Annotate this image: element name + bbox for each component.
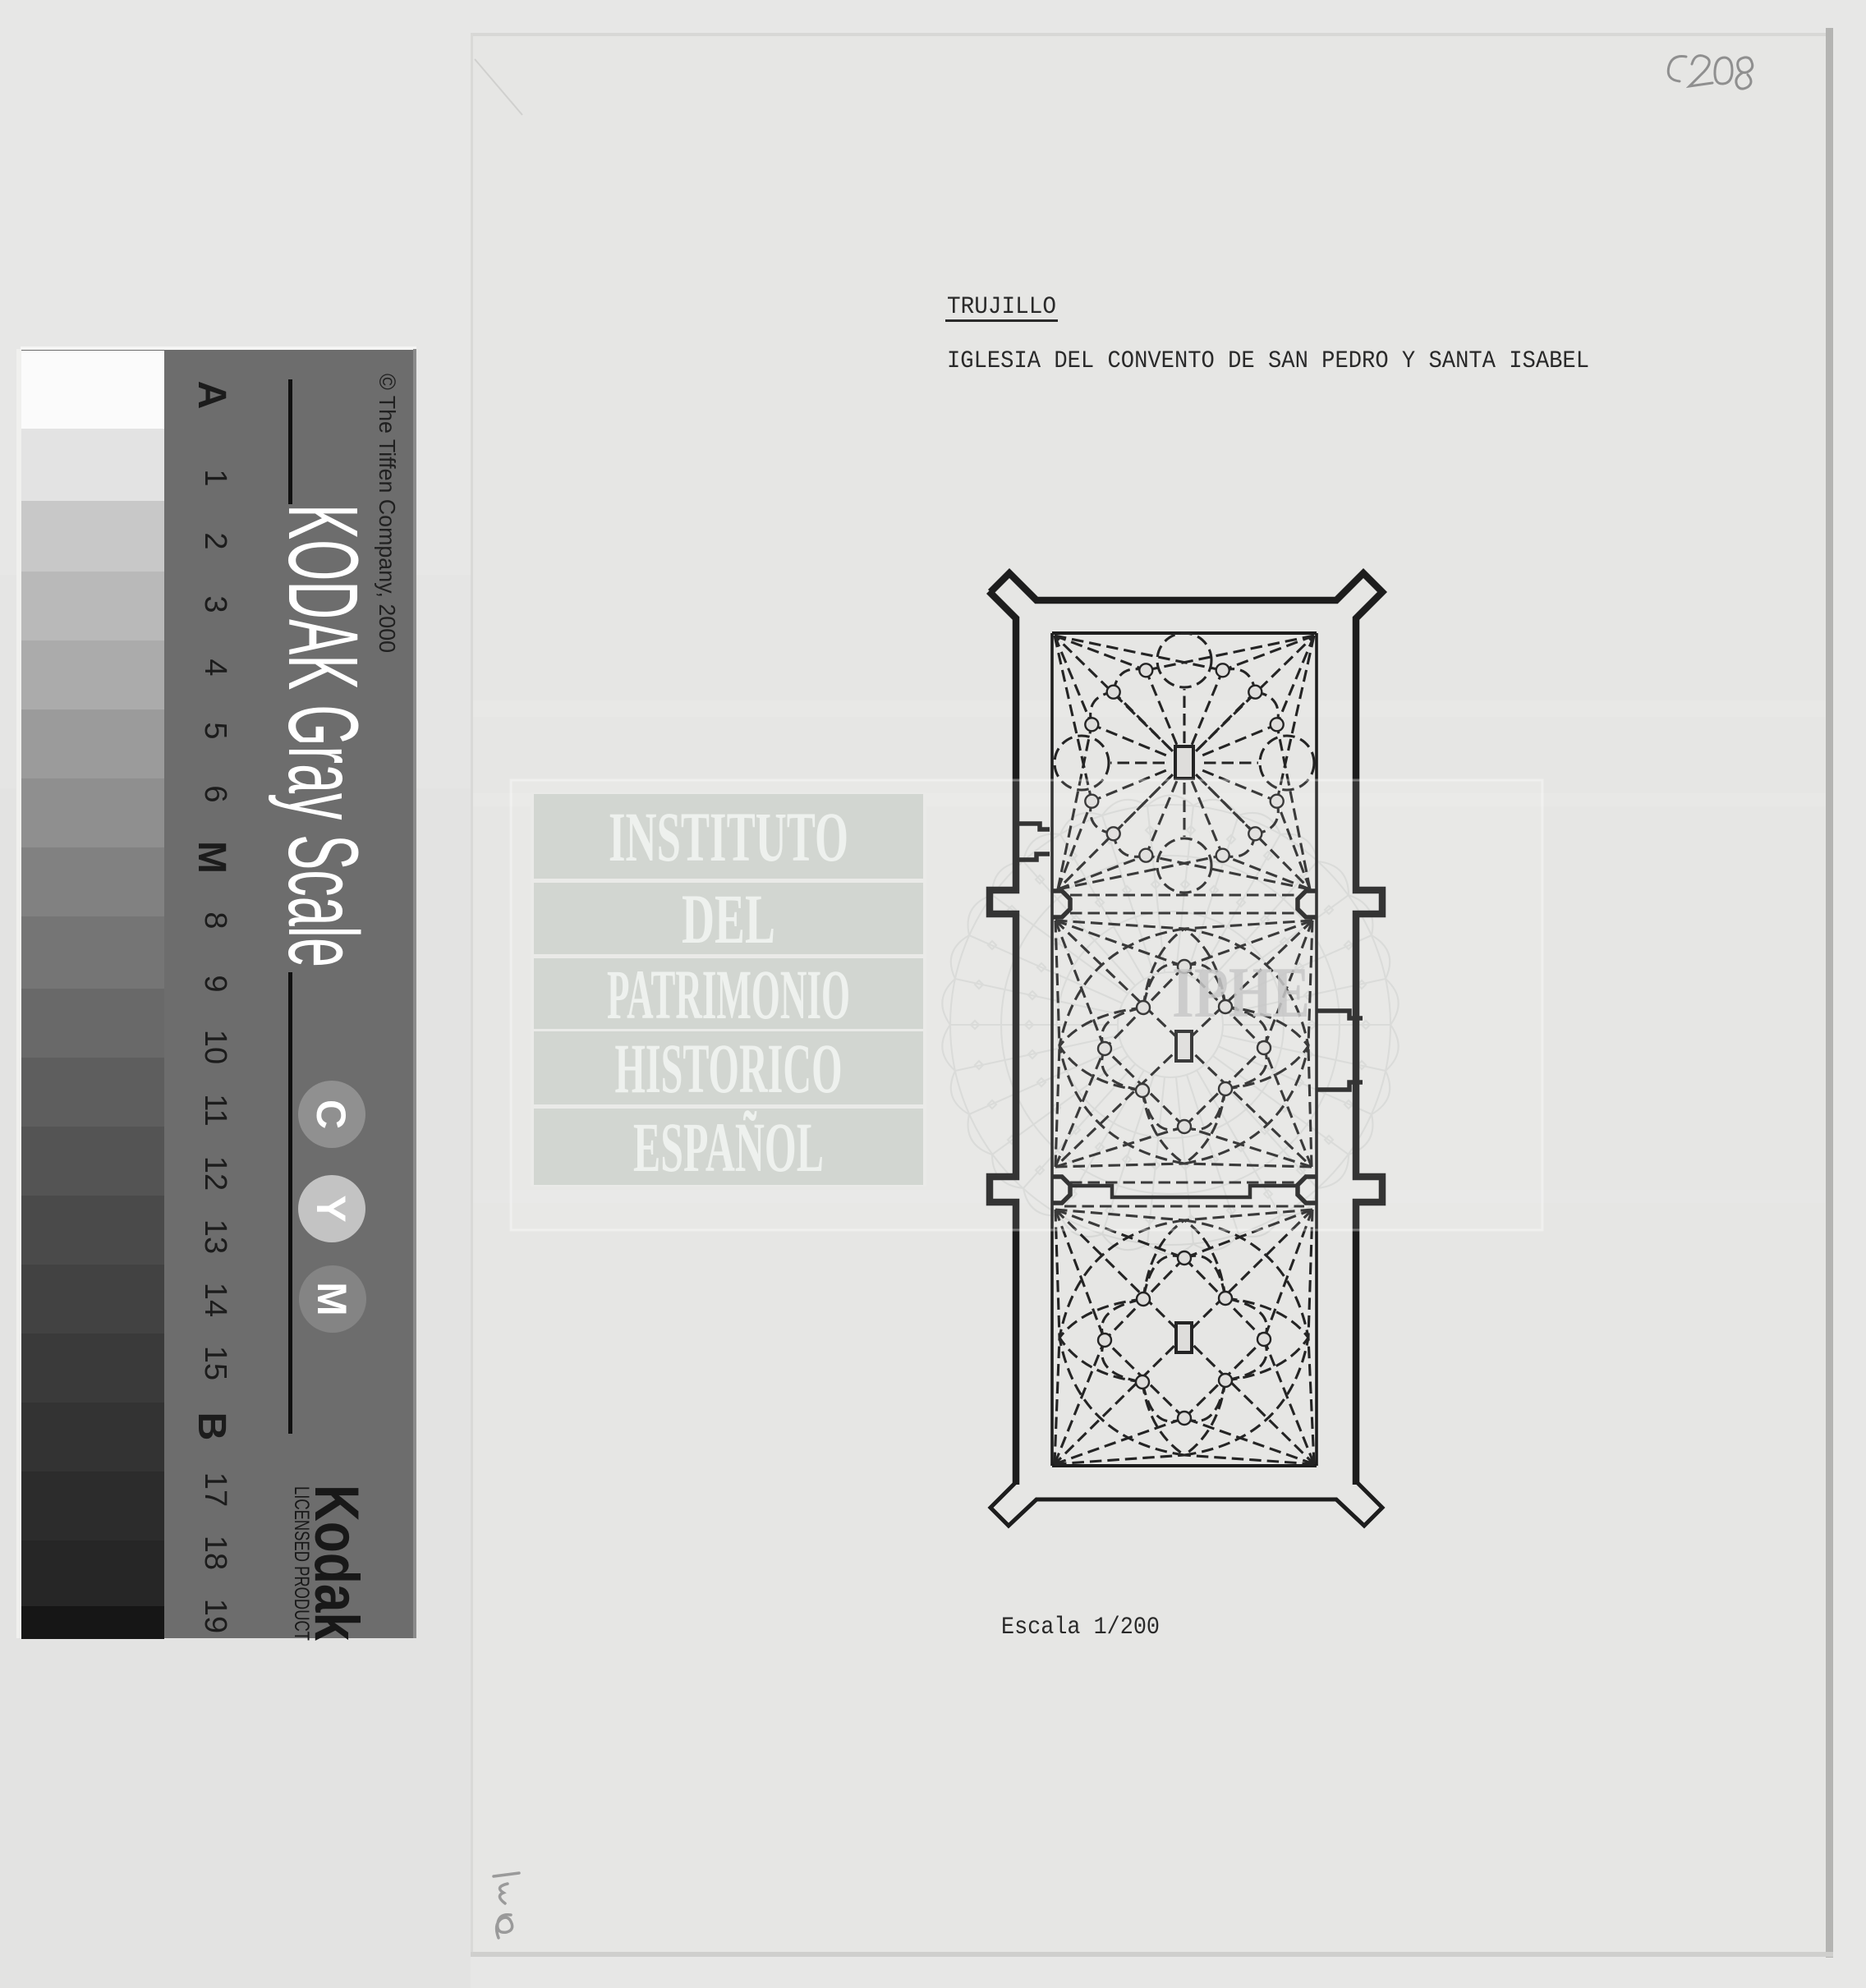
svg-text:10: 10 [198, 1030, 232, 1064]
svg-text:14: 14 [198, 1283, 232, 1317]
svg-text:C: C [308, 1100, 354, 1129]
svg-text:8: 8 [198, 911, 232, 929]
svg-text:Y: Y [308, 1195, 354, 1222]
svg-text:TRUJILLO: TRUJILLO [947, 293, 1056, 321]
svg-text:18: 18 [198, 1536, 232, 1570]
svg-text:1: 1 [198, 469, 232, 486]
svg-text:A: A [190, 381, 233, 410]
svg-text:15: 15 [198, 1346, 232, 1380]
svg-text:17: 17 [198, 1472, 232, 1507]
svg-text:9: 9 [198, 975, 232, 992]
svg-text:Escala 1/200: Escala 1/200 [1001, 1614, 1160, 1641]
svg-text:LICENSED PRODUCT: LICENSED PRODUCT [290, 1486, 313, 1641]
svg-text:3: 3 [198, 595, 232, 613]
svg-text:B: B [190, 1412, 233, 1441]
svg-text:12: 12 [198, 1156, 232, 1191]
svg-text:IGLESIA DEL CONVENTO DE SAN PE: IGLESIA DEL CONVENTO DE SAN PEDRO Y SANT… [947, 347, 1589, 375]
svg-text:19: 19 [198, 1599, 232, 1633]
svg-text:13: 13 [198, 1219, 232, 1254]
svg-text:4: 4 [198, 659, 232, 676]
svg-text:6: 6 [198, 785, 232, 802]
svg-text:M: M [190, 841, 233, 874]
svg-text:5: 5 [198, 722, 232, 739]
svg-text:M: M [309, 1282, 355, 1316]
svg-text:KODAK Gray Scale: KODAK Gray Scale [268, 504, 379, 967]
svg-text:11: 11 [198, 1094, 232, 1126]
svg-text:© The Tiffen Company, 2000: © The Tiffen Company, 2000 [375, 374, 400, 653]
svg-text:2: 2 [198, 532, 232, 549]
